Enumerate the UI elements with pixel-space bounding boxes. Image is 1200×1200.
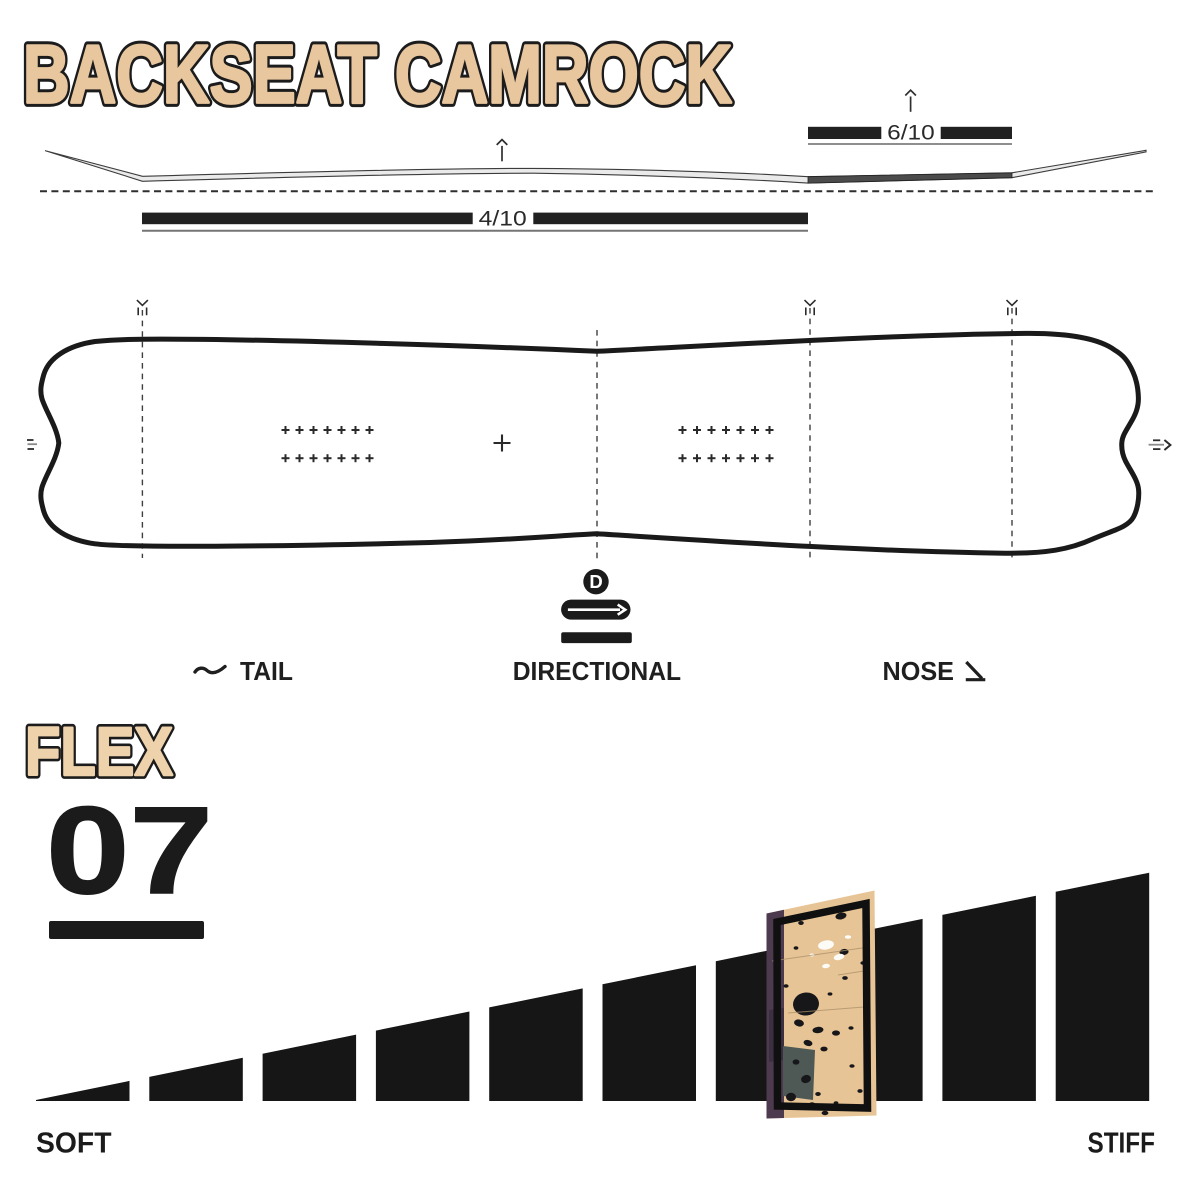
svg-text:TAIL: TAIL — [240, 656, 293, 686]
svg-text:4/10: 4/10 — [479, 208, 527, 231]
svg-text:FLEX: FLEX — [25, 713, 173, 790]
svg-text:DIRECTIONAL: DIRECTIONAL — [513, 656, 681, 686]
svg-text:07: 07 — [46, 782, 213, 920]
svg-text:NOSE: NOSE — [883, 656, 955, 686]
svg-text:6/10: 6/10 — [887, 122, 935, 145]
svg-text:STIFF: STIFF — [1088, 1128, 1156, 1160]
svg-text:D: D — [589, 571, 602, 592]
svg-text:SOFT: SOFT — [36, 1128, 112, 1160]
svg-text:BACKSEAT CAMROCK: BACKSEAT CAMROCK — [23, 29, 732, 121]
